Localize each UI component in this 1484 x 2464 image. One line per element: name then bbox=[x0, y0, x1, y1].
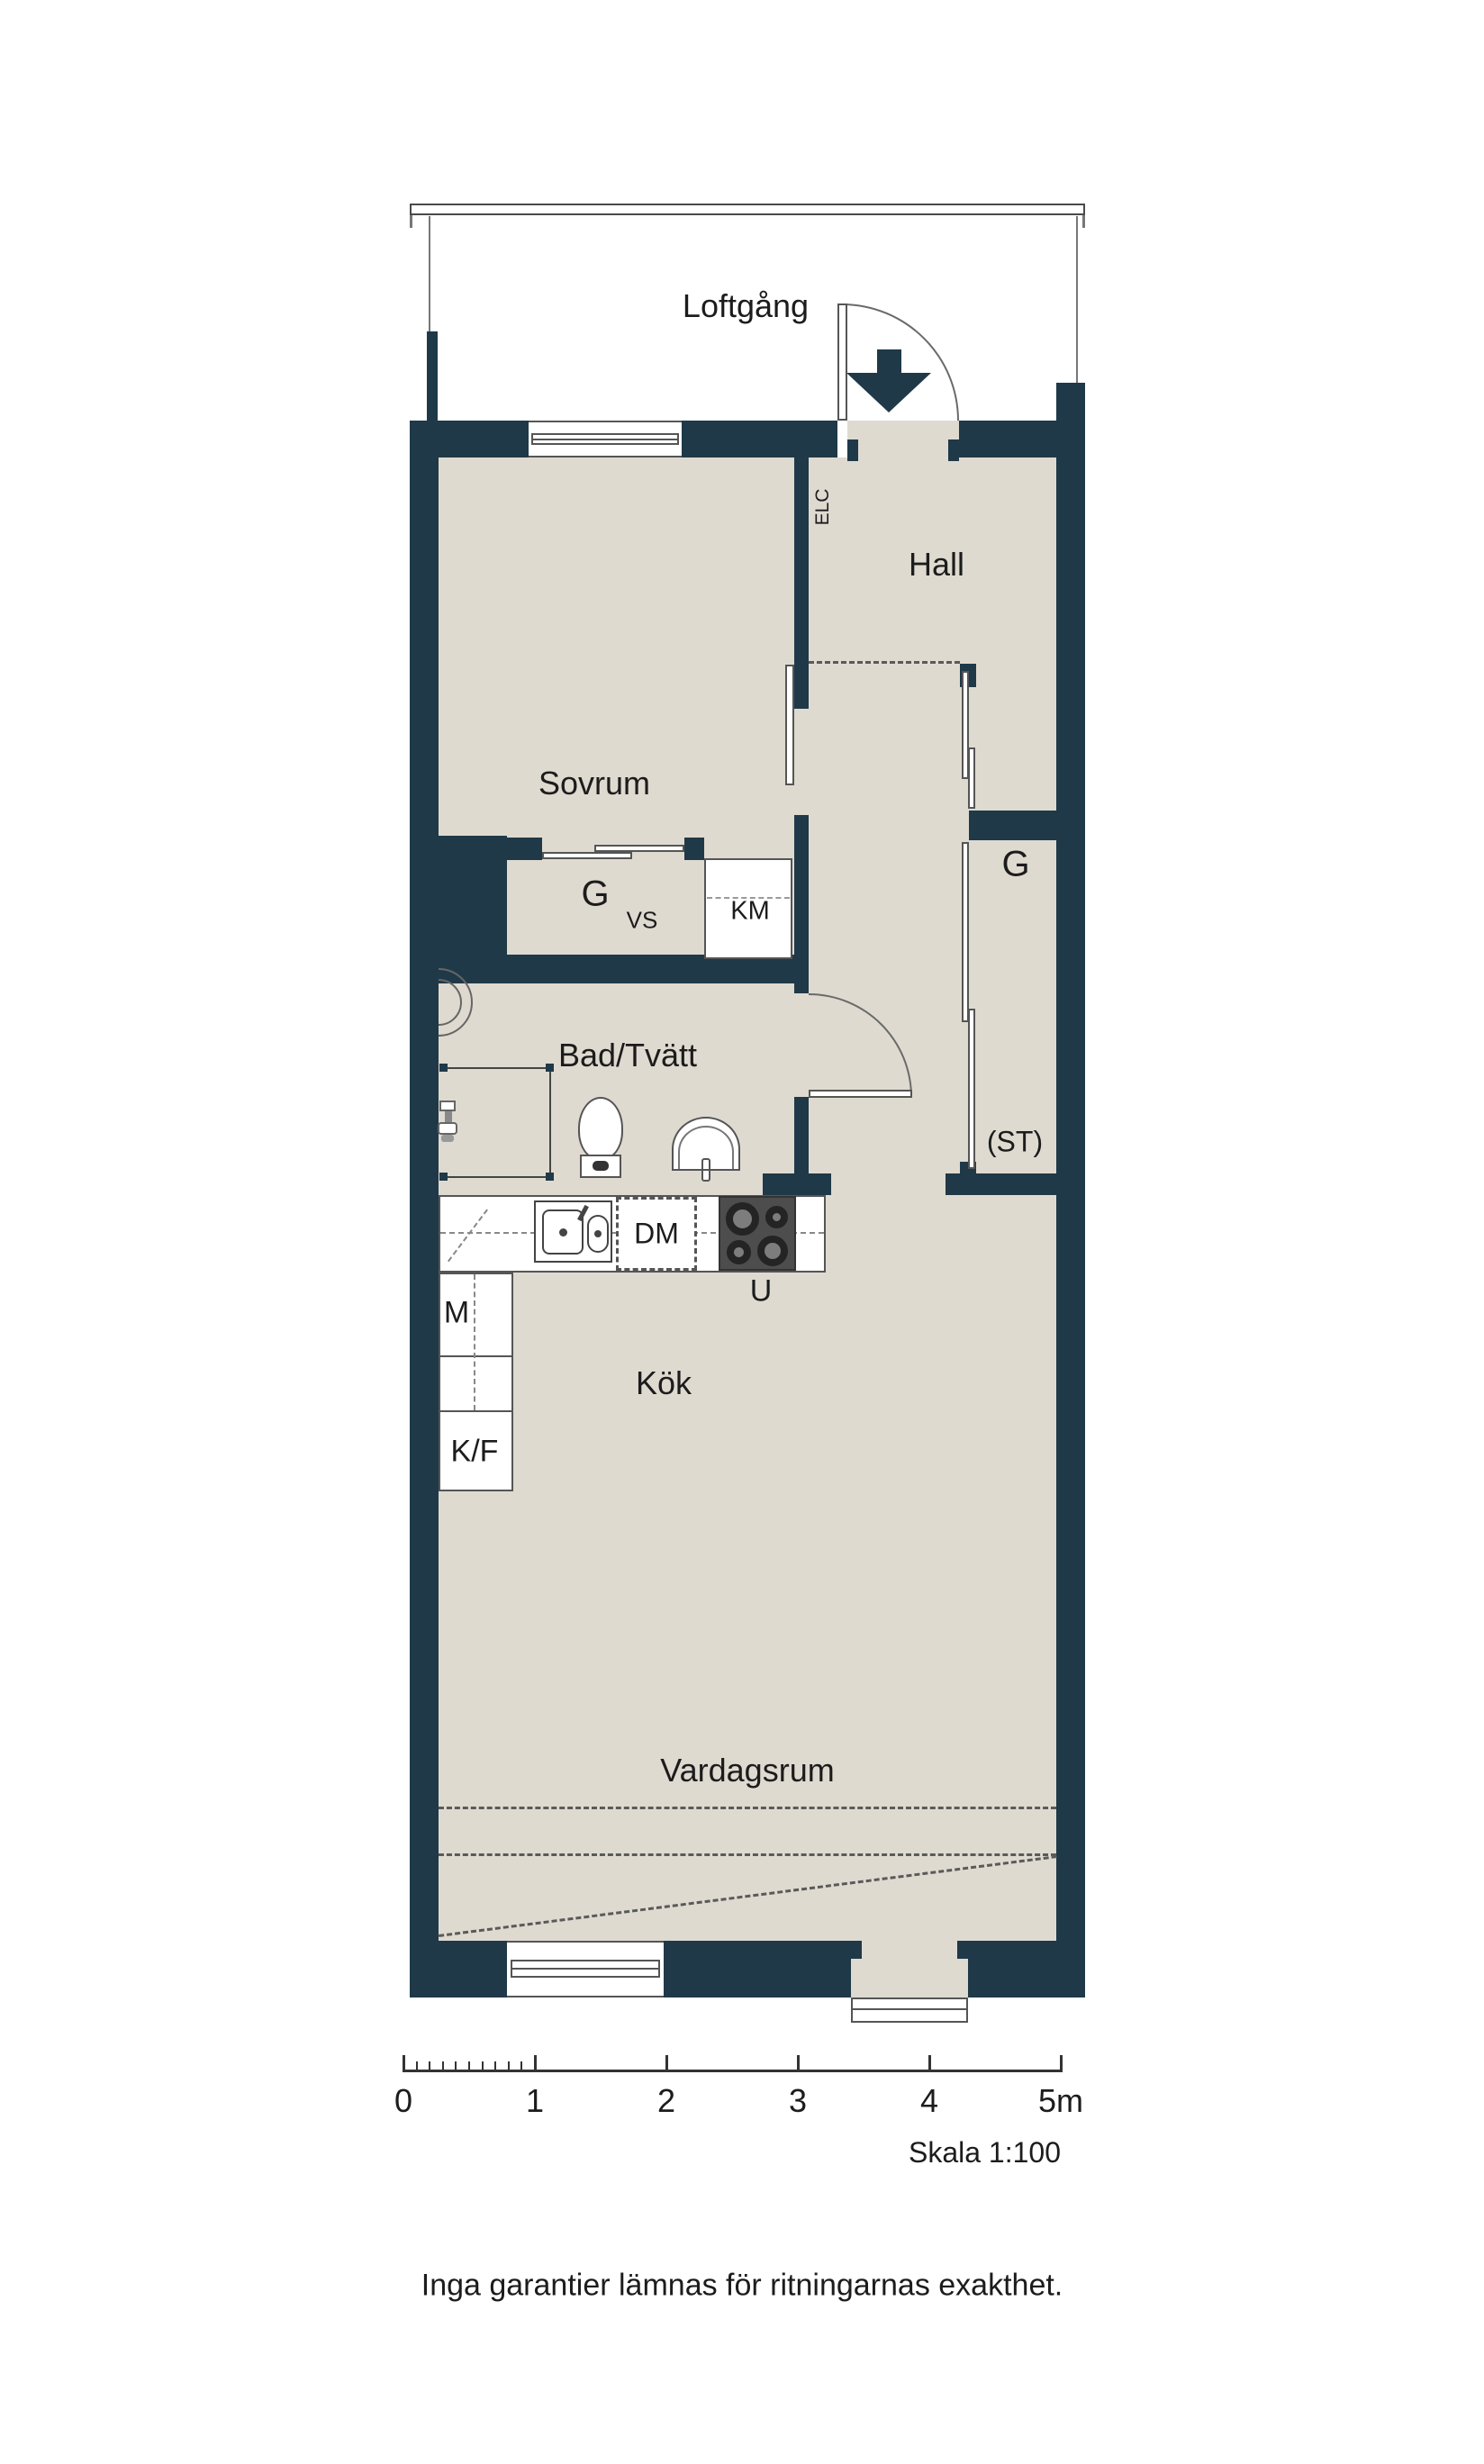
walkway-right-boundary bbox=[1076, 216, 1078, 383]
closet-top-wall-right bbox=[684, 838, 704, 860]
shower-screen-bottom bbox=[443, 1176, 551, 1178]
label-kf: K/F bbox=[451, 1435, 499, 1470]
stove-burner-bl bbox=[727, 1240, 751, 1264]
stove-icon bbox=[719, 1196, 796, 1271]
scale-minor-tick bbox=[508, 2061, 510, 2072]
scale-minor-tick bbox=[494, 2061, 496, 2072]
label-u: U bbox=[750, 1274, 773, 1309]
vardagsrum-window-sill-line bbox=[512, 1968, 658, 1970]
label-g-closet: G bbox=[581, 874, 609, 915]
shower-screen-right bbox=[549, 1067, 551, 1178]
entrance-threshold-floor bbox=[847, 421, 959, 461]
label-st: (ST) bbox=[987, 1126, 1043, 1159]
walkway-railing-endcap-right bbox=[1082, 215, 1085, 228]
shower-screen-top bbox=[443, 1067, 551, 1069]
stove-burner-br bbox=[757, 1236, 788, 1266]
toilet-bowl-icon bbox=[578, 1097, 623, 1160]
sovrum-door-leaf bbox=[785, 665, 794, 785]
floor-plan: Loftgång bbox=[0, 0, 1484, 2464]
hall-opening-dashed-line bbox=[809, 661, 960, 664]
g-wardrobe-sliding-door-2 bbox=[968, 1009, 975, 1169]
scale-major-tick bbox=[403, 2055, 405, 2072]
room-label-bad-tvatt: Bad/Tvätt bbox=[558, 1037, 697, 1074]
top-wall-middle bbox=[682, 421, 837, 457]
shower-arcs-clip bbox=[439, 965, 476, 1039]
shower-corner-dot-tr bbox=[546, 1064, 554, 1072]
kitchen-sink-drain-right bbox=[594, 1230, 602, 1237]
balcony-door-sill bbox=[851, 1997, 968, 2023]
scale-minor-tick bbox=[468, 2061, 470, 2072]
stove-burner-tl bbox=[726, 1202, 759, 1236]
scale-minor-tick bbox=[520, 2061, 522, 2072]
cabinet-middle-box bbox=[439, 1355, 513, 1412]
right-exterior-wall bbox=[1056, 383, 1085, 1997]
bottom-wall-middle bbox=[664, 1941, 851, 1997]
vardagsrum-dashed-line-2 bbox=[439, 1853, 1056, 1856]
label-dm: DM bbox=[634, 1218, 679, 1251]
shower-mixer-icon bbox=[438, 1101, 461, 1142]
room-label-vardagsrum: Vardagsrum bbox=[660, 1752, 834, 1789]
balcony-door-jamb-right bbox=[957, 1941, 968, 1959]
label-km: KM bbox=[730, 897, 770, 927]
scale-tick-label: 4 bbox=[920, 2082, 938, 2120]
wardrobe-bottom-wall bbox=[946, 1173, 1056, 1195]
walkway-railing bbox=[410, 204, 1085, 215]
shower-corner-dot-bl bbox=[439, 1173, 448, 1181]
scale-tick-label: 0 bbox=[394, 2082, 412, 2120]
scale-major-tick bbox=[928, 2055, 931, 2072]
scale-minor-tick bbox=[482, 2061, 484, 2072]
scale-tick-label: 1 bbox=[526, 2082, 544, 2120]
walkway-railing-endcap-left bbox=[410, 215, 412, 228]
scale-text: Skala 1:100 bbox=[909, 2136, 1061, 2170]
stove-burner-tr bbox=[765, 1206, 788, 1228]
closet-top-wall-left bbox=[507, 838, 542, 860]
vardagsrum-dashed-line-1 bbox=[439, 1807, 1056, 1809]
hall-closet-separator-wall bbox=[969, 811, 1056, 840]
balcony-door-threshold-floor bbox=[851, 1941, 968, 1997]
balcony-door-jamb-left bbox=[851, 1941, 862, 1959]
entrance-arrow-head bbox=[846, 373, 931, 412]
cabinet-column-dashed-line bbox=[474, 1274, 475, 1410]
washbasin-base-line bbox=[674, 1169, 738, 1171]
g-wardrobe-sliding-door-1 bbox=[962, 842, 969, 1022]
bottom-wall-left bbox=[410, 1941, 507, 1997]
sovrum-east-wall-upper bbox=[794, 457, 809, 709]
disclaimer-text: Inga garantier lämnas för ritningarnas e… bbox=[421, 2269, 1063, 2304]
label-m: M bbox=[444, 1296, 469, 1331]
scale-tick-label: 2 bbox=[657, 2082, 675, 2120]
sovrum-window-sill-line bbox=[533, 439, 677, 440]
scale-tick-label: 3 bbox=[789, 2082, 807, 2120]
entrance-arrow-icon bbox=[877, 349, 901, 375]
closet-sliding-door-1 bbox=[542, 852, 632, 859]
label-g-wardrobe: G bbox=[1001, 845, 1029, 885]
scale-tick-label: 5m bbox=[1038, 2082, 1083, 2120]
walkway-left-wall-stub bbox=[427, 331, 438, 421]
label-elc: ELC bbox=[812, 489, 834, 526]
walkway-left-boundary bbox=[429, 216, 430, 331]
kitchen-sink-unit bbox=[534, 1200, 612, 1263]
scale-bar-labels: 012345m bbox=[403, 2082, 1061, 2124]
label-vs: VS bbox=[627, 907, 658, 935]
scale-minor-tick bbox=[429, 2061, 430, 2072]
closet-sliding-door-2 bbox=[594, 845, 684, 852]
scale-major-tick bbox=[797, 2055, 800, 2072]
kitchen-sink-drain-left bbox=[559, 1228, 567, 1237]
entrance-jamb-left bbox=[847, 439, 858, 461]
scale-minor-tick bbox=[416, 2061, 418, 2072]
entrance-jamb-right bbox=[948, 439, 959, 461]
scale-major-tick bbox=[534, 2055, 537, 2072]
room-label-loftgang: Loftgång bbox=[683, 287, 809, 325]
hall-wardrobe-sliding-door-2 bbox=[968, 747, 975, 809]
shower-corner-dot-br bbox=[546, 1173, 554, 1181]
bottom-wall-right bbox=[968, 1941, 1085, 1997]
shower-arc-outer bbox=[439, 968, 473, 1037]
room-label-kok: Kök bbox=[636, 1364, 692, 1402]
scale-minor-tick bbox=[455, 2061, 457, 2072]
left-exterior-wall bbox=[410, 421, 439, 1997]
corridor-south-wall bbox=[763, 1173, 831, 1195]
room-label-sovrum: Sovrum bbox=[538, 765, 650, 802]
balcony-door-sill-line bbox=[853, 2008, 966, 2010]
scale-major-tick bbox=[665, 2055, 668, 2072]
shower-corner-dot-tl bbox=[439, 1064, 448, 1072]
scale-minor-tick bbox=[442, 2061, 444, 2072]
scale-bar: 012345m Skala 1:100 bbox=[403, 2053, 1061, 2161]
badrum-door-leaf bbox=[809, 1090, 912, 1098]
toilet-button-icon bbox=[593, 1161, 609, 1171]
room-label-hall: Hall bbox=[909, 546, 964, 584]
scale-major-tick bbox=[1060, 2055, 1063, 2072]
